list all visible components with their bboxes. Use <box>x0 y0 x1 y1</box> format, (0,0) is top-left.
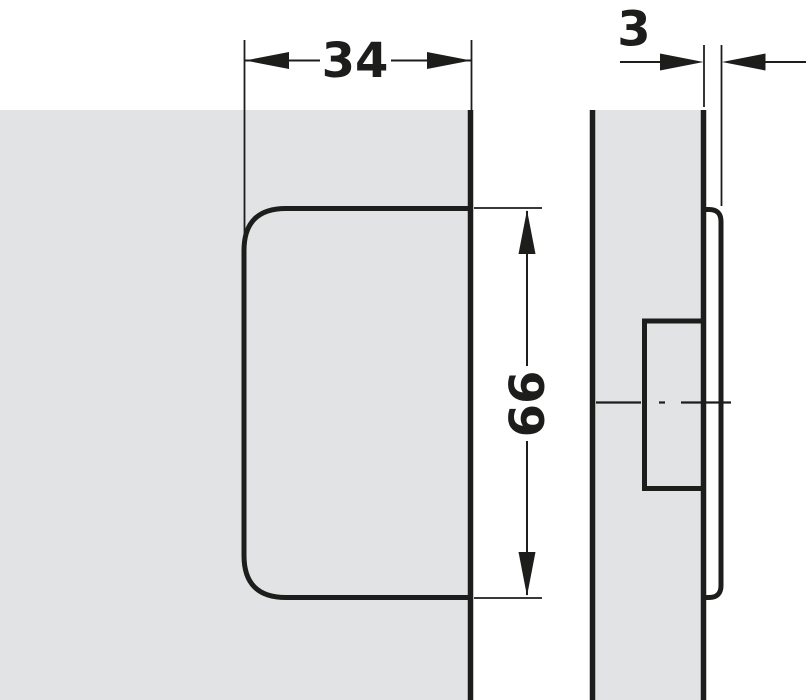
dim-height-label: 66 <box>500 371 556 438</box>
dim-width-label: 34 <box>322 33 389 89</box>
dim-height: 66 <box>474 208 556 598</box>
dim-thickness-arrowhead-left-icon <box>660 54 704 71</box>
side-panel <box>592 110 704 700</box>
dim-width-arrowhead-right-icon <box>427 52 471 69</box>
dim-thickness-label: 3 <box>617 2 650 58</box>
dim-thickness-arrowhead-right-icon <box>722 54 766 71</box>
front-panel <box>0 110 471 700</box>
front-view: 34 66 <box>0 33 556 700</box>
dimension-drawing-page: 34 66 <box>0 0 808 700</box>
dim-height-arrowhead-up-icon <box>519 210 536 254</box>
dim-width-arrowhead-left-icon <box>245 52 289 69</box>
dim-height-arrowhead-down-icon <box>519 552 536 596</box>
side-view: 3 <box>592 2 806 700</box>
dimension-drawing: 34 66 <box>0 0 808 700</box>
